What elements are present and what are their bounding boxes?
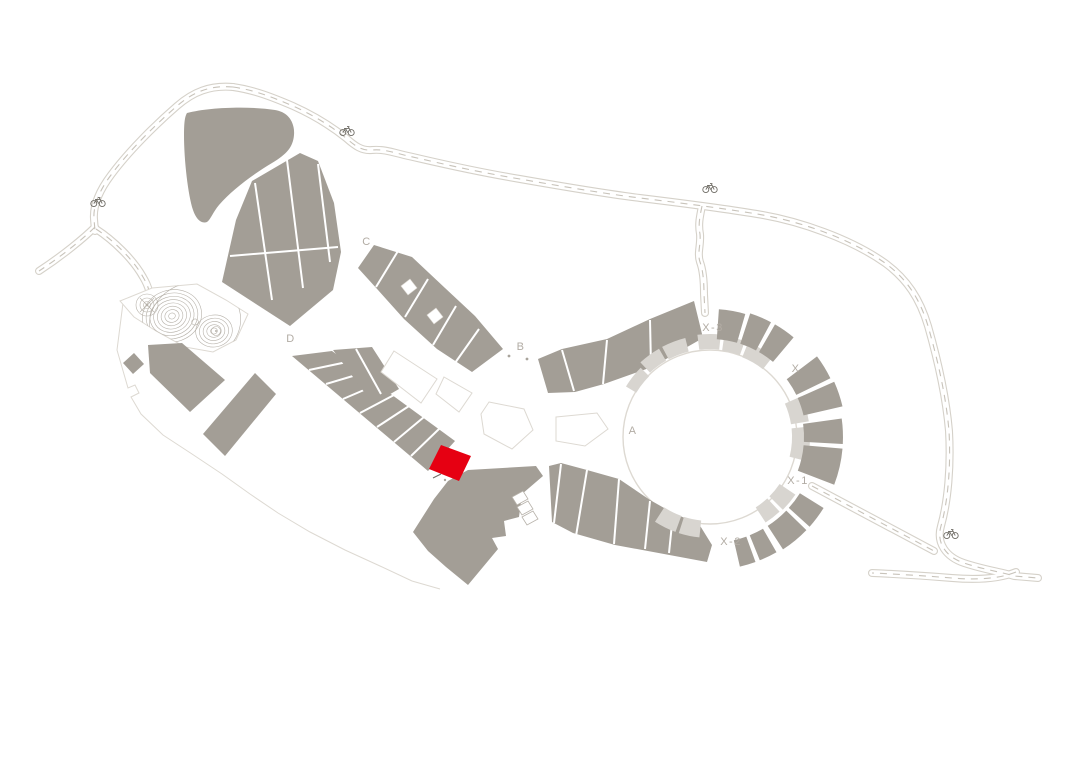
zone-label-X-2: X-2 [720, 536, 742, 548]
building [358, 245, 503, 372]
building [123, 353, 144, 374]
building [148, 343, 225, 412]
bicycle-icon [703, 184, 717, 193]
building [413, 466, 543, 585]
ring-building-segment [803, 419, 843, 445]
zone-label-B: B [517, 341, 526, 353]
park-area [120, 284, 248, 352]
walkway-marks [508, 355, 529, 361]
walkway-island [436, 377, 472, 412]
zone-label-C: C [362, 236, 371, 248]
bicycle-icon [944, 530, 958, 539]
site-map-page: ABCDXX-1X-2X-3 [0, 0, 1080, 764]
zone-label-D: D [286, 333, 295, 345]
zone-label-X-3: X-3 [702, 322, 724, 334]
zone-label-X-1: X-1 [787, 475, 809, 487]
zone-label-A: A [629, 425, 638, 437]
walkway-island [556, 413, 608, 446]
ring-building-segment [750, 529, 777, 561]
walkway-island [481, 402, 533, 449]
site-map: ABCDXX-1X-2X-3 [0, 0, 1080, 764]
zone-label-X: X [792, 363, 801, 375]
